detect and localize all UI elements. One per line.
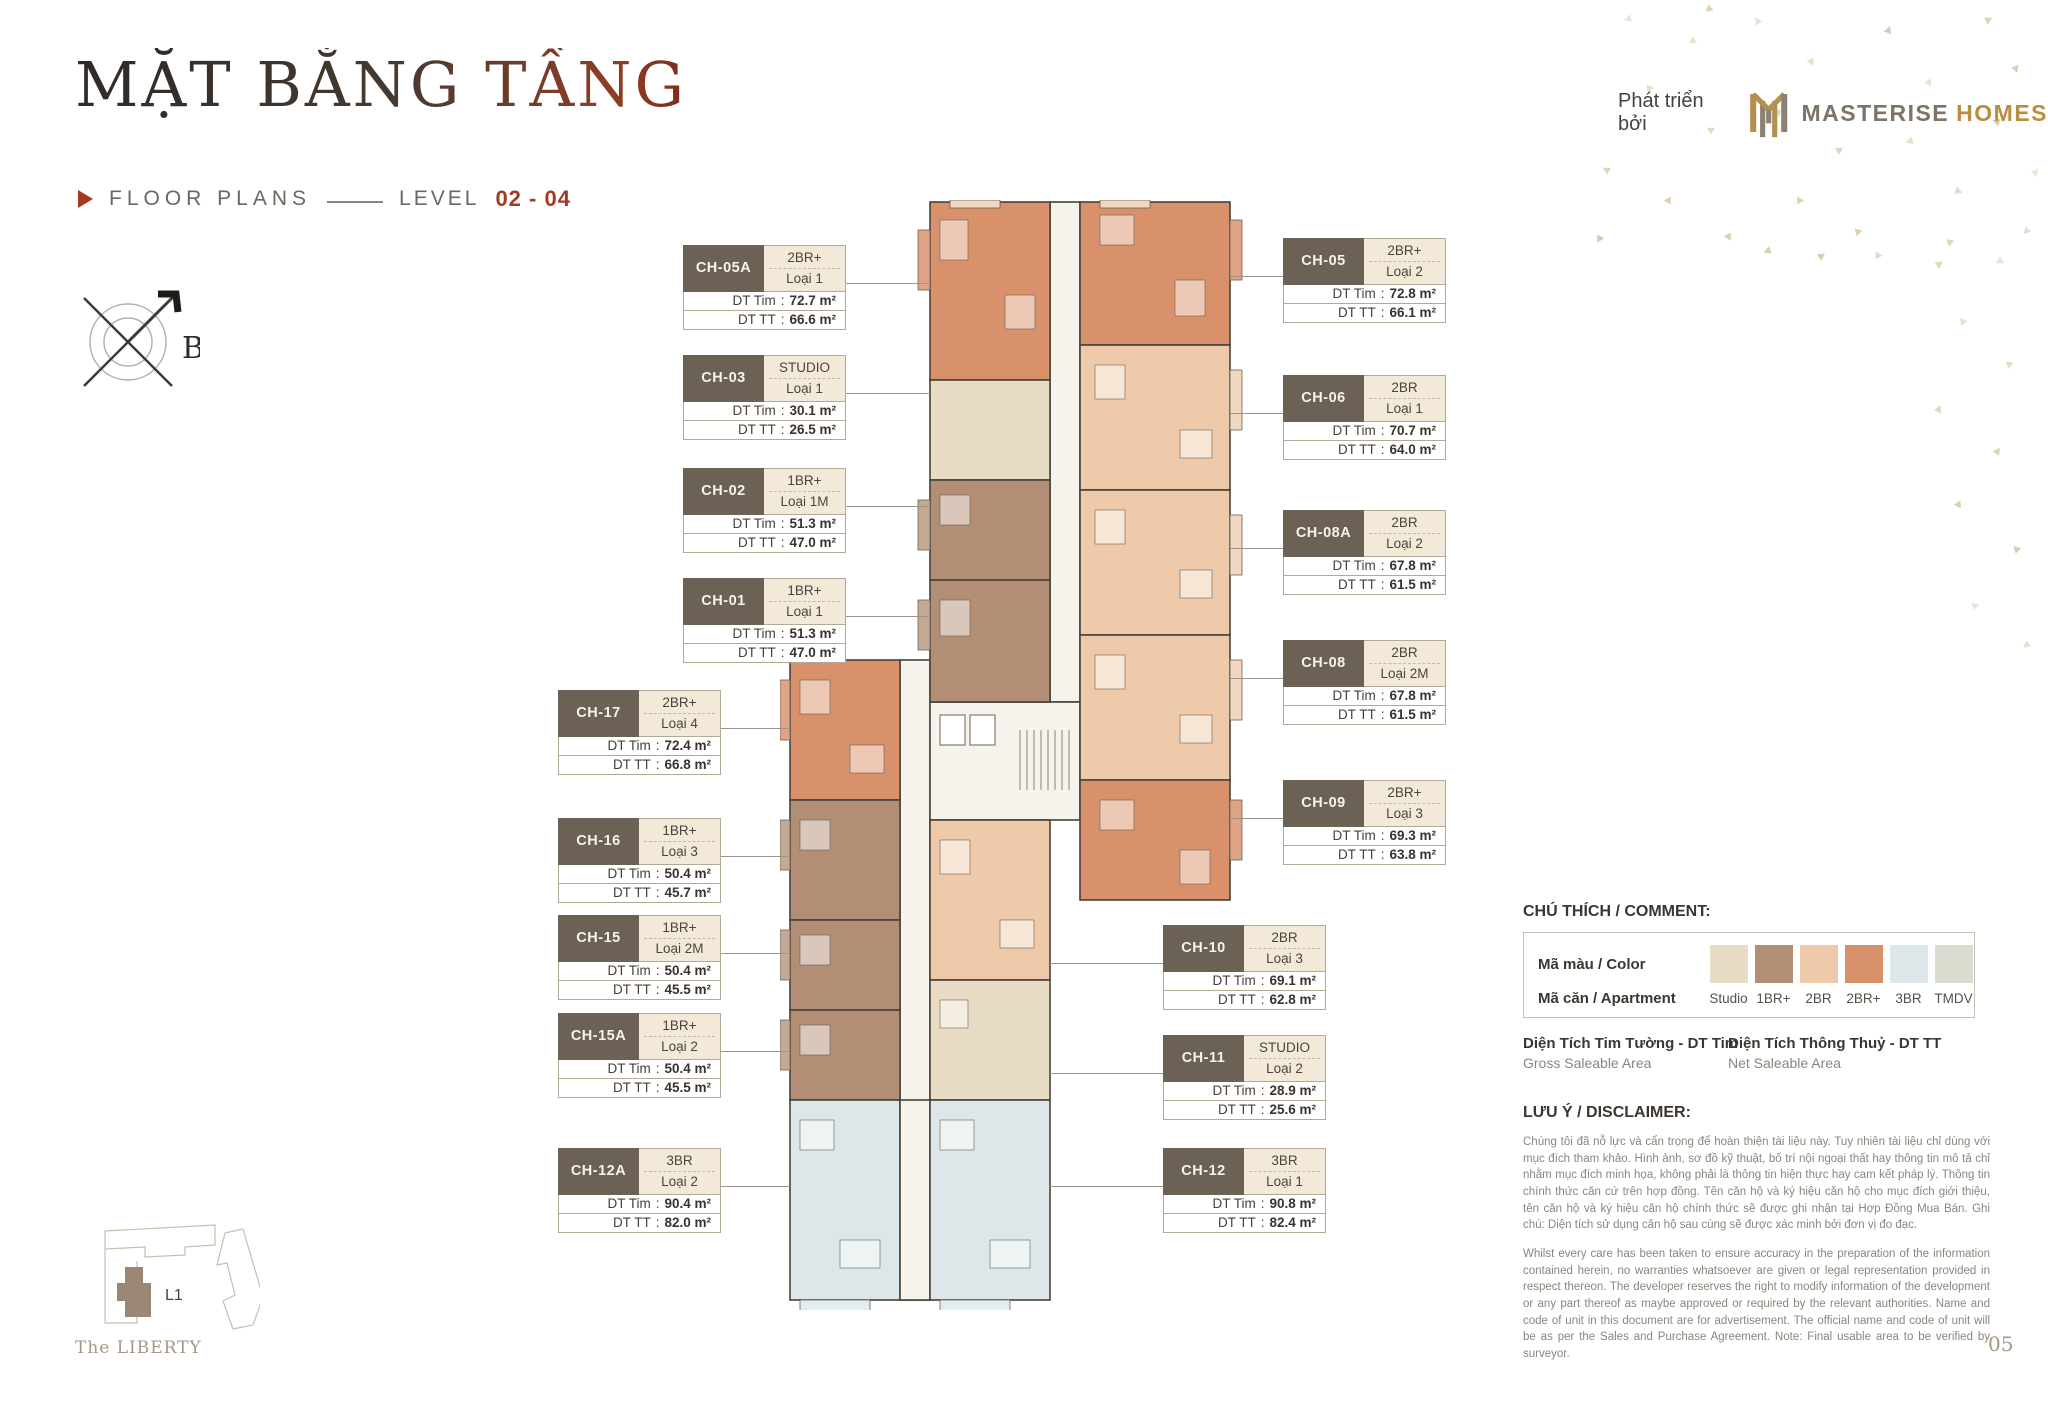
- compass-icon: B: [70, 280, 200, 400]
- unit-variant: Loại 4: [661, 714, 698, 732]
- legend-item-label: 1BR+: [1751, 991, 1796, 1006]
- dt-tt-value: 47.0 m²: [789, 535, 836, 551]
- dt-tim-value: 67.8 m²: [1389, 688, 1436, 704]
- unit-variant: Loại 3: [1386, 804, 1423, 822]
- dt-tt-value: 66.8 m²: [664, 757, 711, 773]
- dt-tt-value: 66.6 m²: [789, 312, 836, 328]
- masterise-logo-icon: [1748, 88, 1789, 138]
- disclaimer-vi: Chúng tôi đã nỗ lực và cẩn trọng để hoàn…: [1523, 1134, 1990, 1234]
- unit-type: 2BR: [1249, 930, 1320, 949]
- developer-block: Phát triển bởi MASTERISEHOMES: [1618, 88, 2048, 138]
- dt-tt-value: 45.7 m²: [664, 885, 711, 901]
- dt-tim-value: 70.7 m²: [1389, 423, 1436, 439]
- unit-type: 2BR: [1369, 515, 1440, 534]
- legend-box: Mã màu / Color Mã căn / Apartment Studio…: [1523, 932, 1975, 1018]
- legend-item-label: TMDV: [1931, 991, 1976, 1006]
- unit-id: CH-11: [1163, 1035, 1244, 1082]
- legend-item-label: 2BR+: [1841, 991, 1886, 1006]
- dt-tt-label: DT TT: [1338, 707, 1376, 723]
- dt-tt-label: DT TT: [613, 1215, 651, 1231]
- dt-tt-label: DT TT: [613, 885, 651, 901]
- site-plan-building-label: L1: [165, 1287, 183, 1304]
- unit-variant: Loại 1M: [780, 492, 828, 510]
- net-area-vi: Diện Tích Thông Thuỷ - DT TT: [1728, 1035, 1968, 1052]
- dt-tim-value: 50.4 m²: [664, 866, 711, 882]
- unit-type: 2BR: [1369, 645, 1440, 664]
- legend-swatch-1br: [1755, 945, 1793, 983]
- unit-type: 2BR+: [644, 695, 715, 714]
- subtitle-level: LEVEL: [399, 187, 479, 211]
- compass-label: B: [182, 331, 200, 366]
- leader-line: [1230, 678, 1283, 679]
- disclaimer-en: Whilst every care has been taken to ensu…: [1523, 1246, 1990, 1363]
- unit-id: CH-09: [1283, 780, 1364, 827]
- dt-tim-label: DT Tim: [1332, 423, 1375, 439]
- unit-variant: Loại 2: [661, 1037, 698, 1055]
- unit-id: CH-08: [1283, 640, 1364, 687]
- unit-callout-ch-09: CH-092BR+Loại 3 DT Tim:69.3 m² DT TT:63.…: [1283, 780, 1446, 865]
- dt-tt-value: 82.4 m²: [1269, 1215, 1316, 1231]
- dt-tt-label: DT TT: [1338, 847, 1376, 863]
- project-name: The LIBERTY: [75, 1338, 202, 1358]
- unit-callout-ch-08a: CH-08A2BRLoại 2 DT Tim:67.8 m² DT TT:61.…: [1283, 510, 1446, 595]
- dt-tim-value: 50.4 m²: [664, 963, 711, 979]
- subtitle-divider: [327, 201, 383, 203]
- unit-type: 2BR+: [1369, 243, 1440, 262]
- dt-tim-label: DT Tim: [1332, 828, 1375, 844]
- dt-tim-value: 72.7 m²: [789, 293, 836, 309]
- floor-plan: [780, 200, 1250, 1310]
- gross-area-vi: Diện Tích Tim Tường - DT Tim: [1523, 1035, 1763, 1052]
- subtitle-label: FLOOR PLANS: [109, 187, 311, 211]
- dt-tt-value: 25.6 m²: [1269, 1102, 1316, 1118]
- dt-tt-label: DT TT: [1338, 577, 1376, 593]
- unit-callout-ch-10: CH-102BRLoại 3 DT Tim:69.1 m² DT TT:62.8…: [1163, 925, 1326, 1010]
- site-plan: L1: [85, 1205, 260, 1345]
- dt-tt-value: 45.5 m²: [664, 1080, 711, 1096]
- dt-tt-label: DT TT: [738, 422, 776, 438]
- dt-tim-label: DT Tim: [1212, 1083, 1255, 1099]
- unit-variant: Loại 2: [661, 1172, 698, 1190]
- leader-line: [721, 856, 790, 857]
- dt-tt-label: DT TT: [1338, 305, 1376, 321]
- leader-line: [1230, 413, 1283, 414]
- legend-swatch-2br: [1800, 945, 1838, 983]
- dt-tt-value: 61.5 m²: [1389, 577, 1436, 593]
- unit-id: CH-15A: [558, 1013, 639, 1060]
- unit-id: CH-02: [683, 468, 764, 515]
- dt-tim-value: 72.8 m²: [1389, 286, 1436, 302]
- dt-tim-value: 28.9 m²: [1269, 1083, 1316, 1099]
- unit-variant: Loại 2: [1386, 534, 1423, 552]
- dt-tim-value: 51.3 m²: [789, 516, 836, 532]
- leader-line: [721, 728, 790, 729]
- unit-variant: Loại 2M: [1380, 664, 1428, 682]
- unit-callout-ch-15: CH-151BR+Loại 2M DT Tim:50.4 m² DT TT:45…: [558, 915, 721, 1000]
- unit-callout-ch-01: CH-011BR+Loại 1 DT Tim:51.3 m² DT TT:47.…: [683, 578, 846, 663]
- dt-tim-label: DT Tim: [607, 738, 650, 754]
- page-title: MẶT BẰNG TẦNG: [75, 48, 687, 121]
- leader-line: [721, 953, 790, 954]
- unit-id: CH-08A: [1283, 510, 1364, 557]
- legend-item-label: 3BR: [1886, 991, 1931, 1006]
- legend-color-row-label: Mã màu / Color: [1538, 956, 1706, 973]
- dt-tt-value: 82.0 m²: [664, 1215, 711, 1231]
- dt-tim-value: 90.4 m²: [664, 1196, 711, 1212]
- leader-line: [846, 283, 930, 284]
- leader-line: [1050, 1073, 1163, 1074]
- disclaimer-title: LƯU Ý / DISCLAIMER:: [1523, 1104, 1691, 1122]
- dt-tim-label: DT Tim: [732, 626, 775, 642]
- dt-tt-label: DT TT: [738, 535, 776, 551]
- leader-line: [1230, 276, 1283, 277]
- unit-id: CH-10: [1163, 925, 1244, 972]
- developer-name-secondary: HOMES: [1956, 100, 2048, 126]
- unit-variant: Loại 2M: [655, 939, 703, 957]
- leader-line: [1230, 548, 1283, 549]
- unit-id: CH-12A: [558, 1148, 639, 1195]
- dt-tim-label: DT Tim: [607, 866, 650, 882]
- developer-name-primary: MASTERISE: [1801, 100, 1949, 126]
- dt-tim-value: 69.1 m²: [1269, 973, 1316, 989]
- dt-tim-value: 90.8 m²: [1269, 1196, 1316, 1212]
- dt-tim-label: DT Tim: [732, 293, 775, 309]
- unit-variant: Loại 3: [661, 842, 698, 860]
- dt-tim-label: DT Tim: [1332, 286, 1375, 302]
- dt-tim-label: DT Tim: [1212, 1196, 1255, 1212]
- dt-tim-value: 72.4 m²: [664, 738, 711, 754]
- dt-tt-label: DT TT: [1218, 1102, 1256, 1118]
- leader-line: [846, 616, 930, 617]
- dt-tt-label: DT TT: [738, 312, 776, 328]
- dt-tim-label: DT Tim: [732, 403, 775, 419]
- unit-callout-ch-08: CH-082BRLoại 2M DT Tim:67.8 m² DT TT:61.…: [1283, 640, 1446, 725]
- unit-id: CH-12: [1163, 1148, 1244, 1195]
- leader-line: [721, 1186, 790, 1187]
- dt-tim-label: DT Tim: [607, 1196, 650, 1212]
- net-area-definition: Diện Tích Thông Thuỷ - DT TT Net Saleabl…: [1728, 1035, 1968, 1071]
- dt-tim-value: 51.3 m²: [789, 626, 836, 642]
- leader-line: [1050, 1186, 1163, 1187]
- dt-tt-value: 61.5 m²: [1389, 707, 1436, 723]
- unit-type: 1BR+: [769, 473, 840, 492]
- dt-tt-value: 45.5 m²: [664, 982, 711, 998]
- unit-type: 2BR+: [1369, 785, 1440, 804]
- unit-id: CH-03: [683, 355, 764, 402]
- unit-type: 1BR+: [644, 920, 715, 939]
- leader-line: [1230, 818, 1283, 819]
- unit-type: STUDIO: [769, 360, 840, 379]
- dt-tim-label: DT Tim: [732, 516, 775, 532]
- gross-area-definition: Diện Tích Tim Tường - DT Tim Gross Salea…: [1523, 1035, 1763, 1071]
- leader-line: [1050, 963, 1163, 964]
- unit-type: 1BR+: [644, 823, 715, 842]
- dt-tt-value: 26.5 m²: [789, 422, 836, 438]
- dt-tim-label: DT Tim: [1332, 558, 1375, 574]
- dt-tt-value: 64.0 m²: [1389, 442, 1436, 458]
- unit-variant: Loại 1: [786, 269, 823, 287]
- legend-swatch-3br: [1890, 945, 1928, 983]
- dt-tt-value: 47.0 m²: [789, 645, 836, 661]
- dt-tim-label: DT Tim: [607, 963, 650, 979]
- dt-tt-label: DT TT: [613, 757, 651, 773]
- developer-prefix: Phát triển bởi: [1618, 90, 1736, 136]
- legend-swatch-tmdv: [1935, 945, 1973, 983]
- leader-line: [846, 506, 930, 507]
- dt-tim-value: 67.8 m²: [1389, 558, 1436, 574]
- subtitle-level-range: 02 - 04: [495, 186, 571, 212]
- floor-plan-page: MẶT BẰNG TẦNG FLOOR PLANS LEVEL 02 - 04 …: [0, 0, 2048, 1412]
- net-area-en: Net Saleable Area: [1728, 1055, 1968, 1071]
- dt-tim-label: DT Tim: [1212, 973, 1255, 989]
- leader-line: [721, 1051, 790, 1052]
- subtitle: FLOOR PLANS LEVEL 02 - 04: [78, 186, 571, 212]
- unit-callout-ch-02: CH-021BR+Loại 1M DT Tim:51.3 m² DT TT:47…: [683, 468, 846, 553]
- unit-callout-ch-05: CH-052BR+Loại 2 DT Tim:72.8 m² DT TT:66.…: [1283, 238, 1446, 323]
- legend-title: CHÚ THÍCH / COMMENT:: [1523, 903, 1711, 921]
- unit-id: CH-01: [683, 578, 764, 625]
- dt-tt-value: 62.8 m²: [1269, 992, 1316, 1008]
- unit-variant: Loại 3: [1266, 949, 1303, 967]
- unit-callout-ch-12: CH-123BRLoại 1 DT Tim:90.8 m² DT TT:82.4…: [1163, 1148, 1326, 1233]
- unit-callout-ch-16: CH-161BR+Loại 3 DT Tim:50.4 m² DT TT:45.…: [558, 818, 721, 903]
- unit-variant: Loại 1: [1386, 399, 1423, 417]
- unit-callout-ch-17: CH-172BR+Loại 4 DT Tim:72.4 m² DT TT:66.…: [558, 690, 721, 775]
- unit-variant: Loại 1: [786, 602, 823, 620]
- dt-tim-label: DT Tim: [1332, 688, 1375, 704]
- unit-type: 1BR+: [769, 583, 840, 602]
- legend-item-label: Studio: [1706, 991, 1751, 1006]
- unit-callout-ch-15a: CH-15A1BR+Loại 2 DT Tim:50.4 m² DT TT:45…: [558, 1013, 721, 1098]
- unit-callout-ch-12a: CH-12A3BRLoại 2 DT Tim:90.4 m² DT TT:82.…: [558, 1148, 721, 1233]
- unit-type: 3BR: [644, 1153, 715, 1172]
- unit-type: 2BR+: [769, 250, 840, 269]
- gross-area-en: Gross Saleable Area: [1523, 1055, 1763, 1071]
- page-number: 05: [1988, 1332, 2013, 1356]
- unit-id: CH-05A: [683, 245, 764, 292]
- unit-callout-ch-03: CH-03STUDIOLoại 1 DT Tim:30.1 m² DT TT:2…: [683, 355, 846, 440]
- developer-name: MASTERISEHOMES: [1801, 100, 2048, 127]
- unit-type: 1BR+: [644, 1018, 715, 1037]
- unit-id: CH-05: [1283, 238, 1364, 285]
- dt-tt-label: DT TT: [1218, 1215, 1256, 1231]
- dt-tim-value: 50.4 m²: [664, 1061, 711, 1077]
- dt-tt-label: DT TT: [1338, 442, 1376, 458]
- dt-tt-label: DT TT: [1218, 992, 1256, 1008]
- leader-line: [846, 393, 930, 394]
- unit-variant: Loại 1: [786, 379, 823, 397]
- bullet-triangle-icon: [78, 190, 93, 208]
- legend-item-label: 2BR: [1796, 991, 1841, 1006]
- dt-tim-value: 69.3 m²: [1389, 828, 1436, 844]
- unit-id: CH-15: [558, 915, 639, 962]
- unit-id: CH-17: [558, 690, 639, 737]
- dt-tt-value: 63.8 m²: [1389, 847, 1436, 863]
- unit-callout-ch-05a: CH-05A2BR+Loại 1 DT Tim:72.7 m² DT TT:66…: [683, 245, 846, 330]
- unit-type: 2BR: [1369, 380, 1440, 399]
- dt-tt-value: 66.1 m²: [1389, 305, 1436, 321]
- unit-callout-ch-11: CH-11STUDIOLoại 2 DT Tim:28.9 m² DT TT:2…: [1163, 1035, 1326, 1120]
- legend-apartment-row-label: Mã căn / Apartment: [1538, 990, 1706, 1007]
- unit-variant: Loại 1: [1266, 1172, 1303, 1190]
- legend-swatch-studio: [1710, 945, 1748, 983]
- dt-tt-label: DT TT: [738, 645, 776, 661]
- legend-swatch-2brp: [1845, 945, 1883, 983]
- unit-id: CH-16: [558, 818, 639, 865]
- unit-id: CH-06: [1283, 375, 1364, 422]
- dt-tt-label: DT TT: [613, 982, 651, 998]
- unit-variant: Loại 2: [1266, 1059, 1303, 1077]
- dt-tim-label: DT Tim: [607, 1061, 650, 1077]
- unit-variant: Loại 2: [1386, 262, 1423, 280]
- unit-type: 3BR: [1249, 1153, 1320, 1172]
- unit-callout-ch-06: CH-062BRLoại 1 DT Tim:70.7 m² DT TT:64.0…: [1283, 375, 1446, 460]
- dt-tim-value: 30.1 m²: [789, 403, 836, 419]
- unit-type: STUDIO: [1249, 1040, 1320, 1059]
- dt-tt-label: DT TT: [613, 1080, 651, 1096]
